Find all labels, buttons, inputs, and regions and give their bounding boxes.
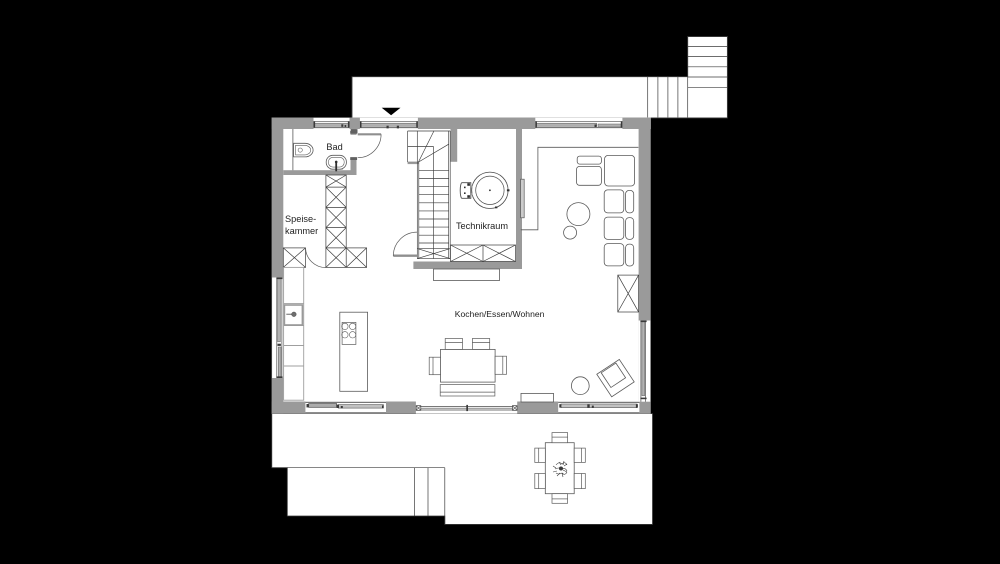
svg-text:Technikraum: Technikraum: [456, 221, 508, 231]
svg-text:Bad: Bad: [326, 142, 342, 152]
svg-text:kammer: kammer: [285, 226, 318, 236]
svg-text:Speise-: Speise-: [285, 214, 316, 224]
svg-text:Kochen/Essen/Wohnen: Kochen/Essen/Wohnen: [455, 309, 545, 319]
